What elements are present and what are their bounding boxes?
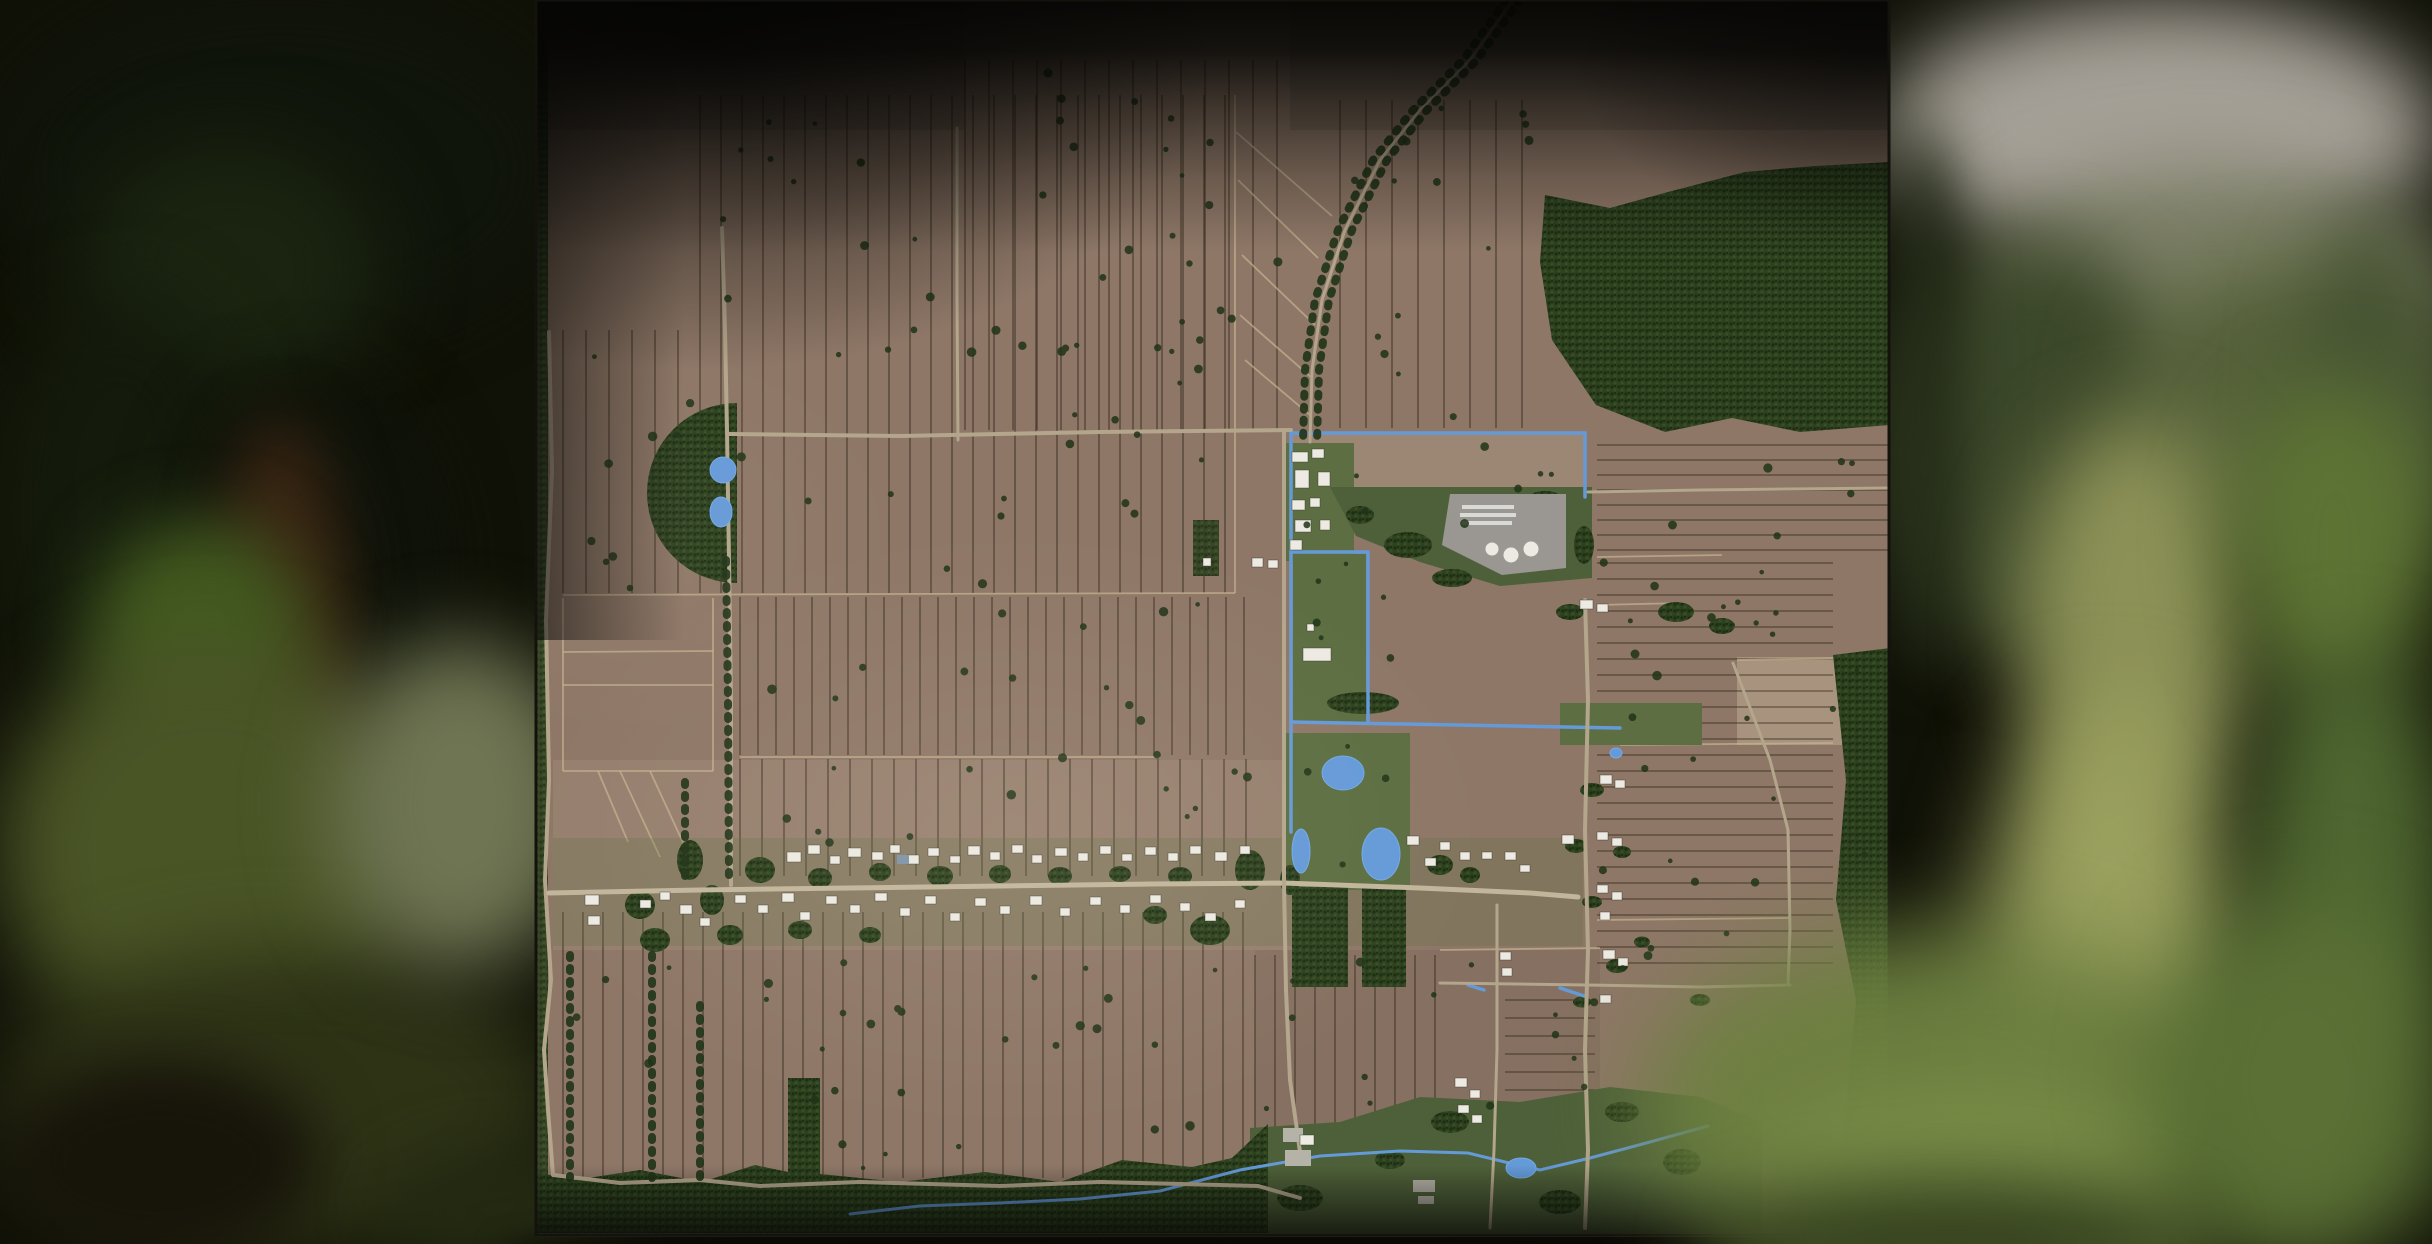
foreground-blur-layer <box>0 0 2432 1244</box>
game-screenshot <box>0 0 2432 1244</box>
foreground-blur-blob <box>2150 900 2432 1244</box>
